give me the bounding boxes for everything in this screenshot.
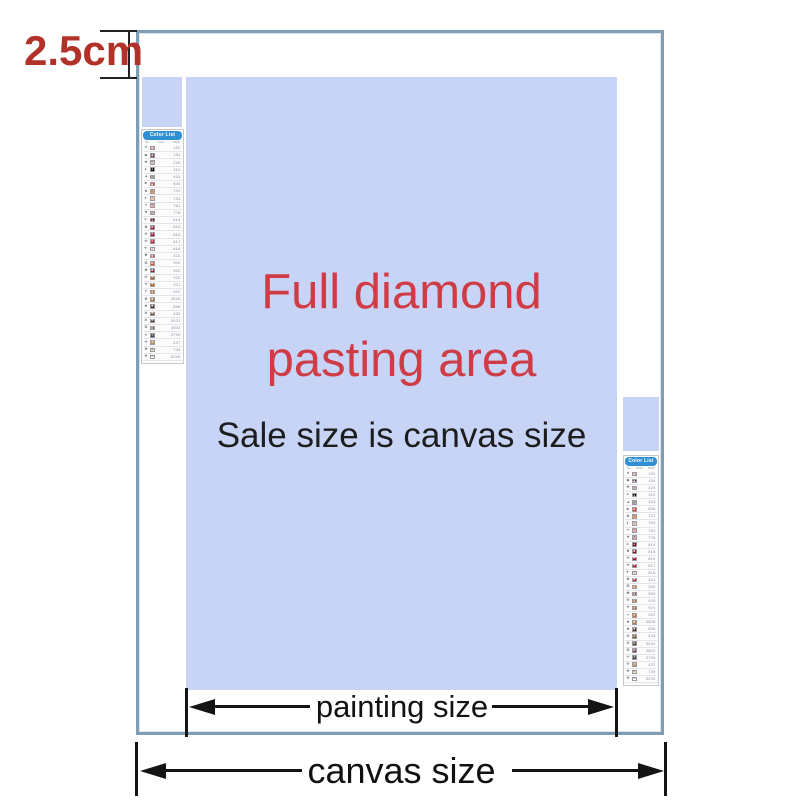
color-swatch: ◆	[632, 479, 637, 484]
color-code: 818	[638, 571, 656, 575]
color-code: 453	[638, 500, 656, 504]
color-swatch: ✤	[632, 670, 637, 675]
color-code: 902	[638, 592, 656, 596]
column-label: Color	[157, 141, 164, 144]
row-symbol: ♦	[627, 522, 631, 526]
color-row: ♦♦754	[625, 520, 657, 527]
column-label: Color	[636, 467, 643, 470]
row-symbol: ♠	[145, 218, 149, 222]
color-code: 606	[638, 507, 656, 511]
row-symbol: ✚	[145, 161, 149, 165]
sale-size-note: Sale size is canvas size	[186, 418, 617, 453]
column-label: DMC	[173, 141, 180, 144]
color-row: ✻✻433	[143, 311, 182, 318]
color-row: ✷✷921	[625, 605, 657, 612]
color-swatch: ✠	[632, 599, 637, 604]
color-row: ✼✼3031	[143, 318, 182, 325]
row-symbol: ✣	[627, 663, 631, 667]
color-swatch: ✣	[632, 662, 637, 667]
color-code: 922	[638, 613, 656, 617]
row-symbol: ♠	[627, 543, 631, 547]
color-swatch: ◆	[150, 153, 155, 158]
color-row: ✣✣437	[625, 662, 657, 669]
color-list-rows: ★★152◆◆154✚✚225●●310▲▲453■■606✿✿722♦♦754…	[143, 145, 182, 361]
color-code: 778	[638, 536, 656, 540]
color-row: ✦✦761	[625, 528, 657, 535]
pasting-area-left-patch	[142, 77, 182, 127]
color-code: 815	[156, 225, 181, 229]
color-code: 152	[156, 146, 181, 150]
color-code: 739	[156, 348, 181, 352]
row-symbol: ●	[145, 168, 149, 172]
column-label: DMC	[648, 467, 655, 470]
color-code: 761	[638, 529, 656, 533]
color-row: ❖❖778	[625, 535, 657, 542]
color-row: ✤✤739	[625, 669, 657, 676]
row-symbol: ❖	[627, 536, 631, 540]
row-symbol: ✢	[145, 334, 149, 338]
color-code: 898	[638, 627, 656, 631]
color-code: 225	[156, 161, 181, 165]
color-swatch: ●	[150, 167, 155, 172]
color-row: ♠♠814	[143, 217, 182, 224]
color-code: 606	[156, 182, 181, 186]
color-swatch: ✸	[150, 297, 155, 302]
color-row: ✤✤739	[143, 347, 182, 354]
color-swatch: ✶	[632, 613, 637, 618]
color-swatch: ✢	[632, 655, 637, 660]
pasting-area-right-patch	[623, 397, 659, 451]
color-code: 900	[638, 585, 656, 589]
color-swatch: ★	[632, 472, 637, 477]
color-code: 152	[638, 472, 656, 476]
color-row: ●●310	[625, 492, 657, 499]
color-code: 921	[638, 606, 656, 610]
color-swatch: ♠	[632, 542, 637, 547]
color-swatch: ✖	[150, 225, 155, 230]
color-code: 921	[156, 283, 181, 287]
row-symbol: ✶	[627, 614, 631, 618]
color-row: ✥✥5200	[625, 676, 657, 683]
color-row: ✽✽902	[625, 591, 657, 598]
color-swatch: ✸	[632, 620, 637, 625]
row-symbol: ✽	[627, 592, 631, 596]
row-symbol: ✤	[145, 348, 149, 352]
color-code: 3826	[638, 620, 656, 624]
color-code: 433	[156, 312, 181, 316]
row-symbol: ❂	[145, 326, 149, 330]
row-symbol: ✤	[627, 670, 631, 674]
color-row: ✶✶922	[143, 289, 182, 296]
color-swatch: ✪	[150, 261, 155, 266]
margin-label: 2.5cm	[24, 30, 124, 72]
color-row: ✥✥5200	[143, 354, 182, 361]
color-swatch: ✤	[150, 348, 155, 353]
row-symbol: ✶	[145, 290, 149, 294]
color-swatch: ✚	[632, 486, 637, 491]
pasting-area-title-line1: Full diamond	[186, 268, 617, 317]
color-code: 818	[156, 247, 181, 251]
color-swatch: ❂	[150, 326, 155, 331]
color-swatch: ❖	[150, 211, 155, 216]
row-symbol: ✦	[145, 204, 149, 208]
row-symbol: ✻	[145, 312, 149, 316]
color-swatch: ■	[632, 507, 637, 512]
row-symbol: ✥	[145, 355, 149, 359]
color-code: 437	[638, 663, 656, 667]
color-row: ✽✽902	[143, 267, 182, 274]
row-symbol: ✼	[145, 319, 149, 323]
color-swatch: ✿	[632, 514, 637, 519]
row-symbol: ✹	[627, 628, 631, 632]
color-code: 761	[156, 204, 181, 208]
color-code: 3031	[638, 642, 656, 646]
color-code: 3799	[156, 333, 181, 337]
color-swatch: ✚	[150, 160, 155, 165]
color-swatch: ●	[632, 493, 637, 498]
color-code: 225	[638, 486, 656, 490]
color-code: 778	[156, 211, 181, 215]
canvas-size-label: canvas size	[136, 753, 667, 789]
row-symbol: ✙	[627, 557, 631, 561]
color-swatch: ♥	[150, 247, 155, 252]
color-row: ✠✠920	[143, 275, 182, 282]
color-row: ✖✖815	[625, 549, 657, 556]
color-swatch: ✼	[632, 641, 637, 646]
color-row: ✜✜817	[625, 563, 657, 570]
row-symbol: ✥	[627, 677, 631, 681]
color-code: 722	[638, 514, 656, 518]
color-code: 722	[156, 189, 181, 193]
color-swatch: ✹	[632, 627, 637, 632]
color-swatch: ■	[150, 182, 155, 187]
color-row: ✷✷921	[143, 282, 182, 289]
color-swatch: ✶	[150, 290, 155, 295]
color-swatch: ✜	[632, 564, 637, 569]
color-code: 920	[156, 276, 181, 280]
column-label: No	[627, 467, 631, 470]
row-symbol: ✹	[145, 305, 149, 309]
color-row: ✚✚225	[143, 159, 182, 166]
color-code: 3802	[638, 649, 656, 653]
row-symbol: ❂	[627, 649, 631, 653]
row-symbol: ✸	[145, 298, 149, 302]
row-symbol: ✺	[627, 578, 631, 582]
color-code: 154	[156, 153, 181, 157]
color-swatch: ✻	[632, 634, 637, 639]
color-swatch: ✣	[150, 340, 155, 345]
color-row: ✸✸3826	[625, 619, 657, 626]
color-swatch: ★	[150, 146, 155, 151]
color-code: 754	[638, 521, 656, 525]
color-code: 754	[156, 197, 181, 201]
color-row: ✜✜817	[143, 239, 182, 246]
row-symbol: ✺	[145, 254, 149, 258]
row-symbol: ✠	[627, 599, 631, 603]
color-code: 310	[638, 493, 656, 497]
color-swatch: ❂	[632, 648, 637, 653]
color-swatch: ✷	[632, 606, 637, 611]
row-symbol: ★	[145, 146, 149, 150]
row-symbol: ✪	[145, 262, 149, 266]
color-code: 3826	[156, 297, 181, 301]
row-symbol: ✣	[145, 341, 149, 345]
color-code: 814	[156, 218, 181, 222]
color-swatch: ✦	[150, 203, 155, 208]
color-swatch: ❖	[632, 535, 637, 540]
row-symbol: ◆	[145, 154, 149, 158]
color-row: ✿✿722	[143, 188, 182, 195]
color-code: 321	[638, 578, 656, 582]
row-symbol: ♥	[145, 247, 149, 251]
row-symbol: ❖	[145, 211, 149, 215]
color-row: ■■606	[143, 181, 182, 188]
color-list-header: Color List	[143, 131, 182, 140]
color-row: ✿✿722	[625, 513, 657, 520]
row-symbol: ✪	[627, 585, 631, 589]
color-swatch: ✻	[150, 312, 155, 317]
color-swatch: ✷	[150, 283, 155, 288]
color-code: 154	[638, 479, 656, 483]
color-row: ✦✦761	[143, 203, 182, 210]
color-swatch: ✦	[632, 528, 637, 533]
color-swatch: ✥	[150, 355, 155, 360]
color-row: ✺✺321	[143, 253, 182, 260]
color-row: ▲▲453	[625, 499, 657, 506]
color-row: ✠✠920	[625, 598, 657, 605]
color-row: ★★152	[625, 471, 657, 478]
color-code: 920	[638, 599, 656, 603]
color-code: 922	[156, 290, 181, 294]
row-symbol: ✠	[145, 276, 149, 280]
row-symbol: ✷	[627, 606, 631, 610]
color-code: 3802	[156, 326, 181, 330]
color-row: ❂❂3802	[143, 325, 182, 332]
row-symbol: ■	[145, 182, 149, 186]
color-code: 5200	[638, 677, 656, 681]
color-row: ✹✹898	[143, 303, 182, 310]
color-swatch: ✖	[632, 549, 637, 554]
row-symbol: ✖	[627, 550, 631, 554]
margin-bracket-bottom-line	[100, 77, 137, 79]
color-code: 310	[156, 168, 181, 172]
column-label: No	[145, 141, 149, 144]
color-code: 453	[156, 175, 181, 179]
color-code: 3031	[156, 319, 181, 323]
color-code: 437	[156, 341, 181, 345]
color-swatch: ✽	[632, 592, 637, 597]
color-code: 5200	[156, 355, 181, 359]
color-code: 817	[156, 240, 181, 244]
color-row: ✪✪900	[143, 260, 182, 267]
row-symbol: ✽	[145, 269, 149, 273]
color-row: ♠♠814	[625, 542, 657, 549]
row-symbol: ✼	[627, 642, 631, 646]
color-row: ❂❂3802	[625, 648, 657, 655]
row-symbol: ■	[627, 508, 631, 512]
color-swatch: ✙	[150, 232, 155, 237]
color-code: 816	[156, 233, 181, 237]
color-row: ✙✙816	[625, 556, 657, 563]
color-swatch: ♦	[150, 196, 155, 201]
color-row: ●●310	[143, 167, 182, 174]
color-code: 814	[638, 543, 656, 547]
color-swatch: ✹	[150, 304, 155, 309]
row-symbol: ✜	[627, 564, 631, 568]
row-symbol: ✖	[145, 226, 149, 230]
color-swatch: ▲	[632, 500, 637, 505]
painting-size-label: painting size	[187, 691, 617, 722]
row-symbol: ♦	[145, 197, 149, 201]
color-row: ✚✚225	[625, 485, 657, 492]
color-list-header: Color List	[625, 457, 657, 466]
row-symbol: ✸	[627, 621, 631, 625]
color-swatch: ✙	[632, 557, 637, 562]
color-row: ✼✼3031	[625, 641, 657, 648]
color-code: 3799	[638, 656, 656, 660]
color-swatch: ✪	[632, 585, 637, 590]
row-symbol: ◆	[627, 479, 631, 483]
color-list-strip-left: Color List No Color DMC ★★152◆◆154✚✚225●…	[141, 129, 184, 364]
row-symbol: ✷	[145, 283, 149, 287]
color-row: ♦♦754	[143, 195, 182, 202]
row-symbol: ▲	[627, 501, 631, 505]
color-row: ✹✹898	[625, 626, 657, 633]
color-row: ◆◆154	[143, 152, 182, 159]
pasting-area-title-line2: pasting area	[186, 336, 617, 385]
color-row: ♥♥818	[625, 570, 657, 577]
color-row: ★★152	[143, 145, 182, 152]
color-code: 898	[156, 305, 181, 309]
color-code: 900	[156, 261, 181, 265]
color-list-strip-right: Color List No Color DMC ★★152◆◆154✚✚225●…	[623, 455, 659, 686]
color-row: ✪✪900	[625, 584, 657, 591]
color-code: 815	[638, 550, 656, 554]
color-swatch: ✠	[150, 276, 155, 281]
row-symbol: ★	[627, 472, 631, 476]
color-row: ✖✖815	[143, 224, 182, 231]
color-row: ♥♥818	[143, 246, 182, 253]
color-swatch: ♥	[632, 571, 637, 576]
color-code: 902	[156, 269, 181, 273]
color-row: ◆◆154	[625, 478, 657, 485]
row-symbol: ▲	[145, 175, 149, 179]
row-symbol: ✙	[145, 233, 149, 237]
color-code: 321	[156, 254, 181, 258]
color-row: ✸✸3826	[143, 296, 182, 303]
color-swatch: ♠	[150, 218, 155, 223]
row-symbol: ✿	[627, 515, 631, 519]
color-swatch: ✿	[150, 189, 155, 194]
color-row: ✶✶922	[625, 612, 657, 619]
color-row: ❖❖778	[143, 210, 182, 217]
row-symbol: ✚	[627, 486, 631, 490]
color-swatch: ✼	[150, 319, 155, 324]
row-symbol: ✿	[145, 190, 149, 194]
color-row: ▲▲453	[143, 174, 182, 181]
product-diagram: 2.5cm Color List No Color DMC ★★152◆◆154…	[0, 0, 800, 800]
color-swatch: ✺	[150, 254, 155, 259]
row-symbol: ✢	[627, 656, 631, 660]
color-list-rows: ★★152◆◆154✚✚225●●310▲▲453■■606✿✿722♦♦754…	[625, 471, 657, 683]
color-row: ✢✢3799	[625, 655, 657, 662]
color-code: 816	[638, 557, 656, 561]
color-row: ✺✺321	[625, 577, 657, 584]
color-swatch: ♦	[632, 521, 637, 526]
row-symbol: ✜	[145, 240, 149, 244]
color-swatch: ✽	[150, 268, 155, 273]
color-code: 433	[638, 634, 656, 638]
row-symbol: ✻	[627, 635, 631, 639]
row-symbol: ✦	[627, 529, 631, 533]
row-symbol: ♥	[627, 571, 631, 575]
row-symbol: ●	[627, 493, 631, 497]
color-row: ✻✻433	[625, 633, 657, 640]
color-row: ✢✢3799	[143, 332, 182, 339]
color-row: ✙✙816	[143, 231, 182, 238]
color-swatch: ✥	[632, 677, 637, 682]
color-swatch: ✺	[632, 578, 637, 583]
color-swatch: ✜	[150, 239, 155, 244]
color-row: ✣✣437	[143, 339, 182, 346]
color-swatch: ▲	[150, 175, 155, 180]
color-code: 817	[638, 564, 656, 568]
color-swatch: ✢	[150, 333, 155, 338]
color-row: ■■606	[625, 506, 657, 513]
color-code: 739	[638, 670, 656, 674]
